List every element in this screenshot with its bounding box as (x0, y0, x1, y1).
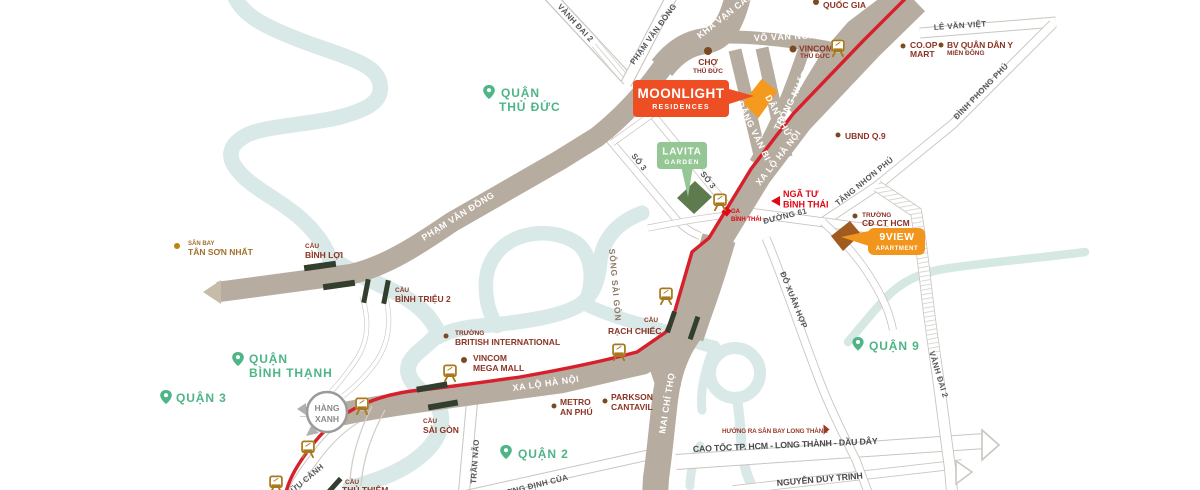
svg-text:THỦ THIÊM: THỦ THIÊM (342, 484, 388, 490)
svg-text:SÂN BAY: SÂN BAY (188, 240, 214, 247)
svg-text:BÌNH TRIỆU 2: BÌNH TRIỆU 2 (395, 293, 451, 304)
svg-text:APARTMENT: APARTMENT (876, 246, 919, 252)
svg-text:LAVITA: LAVITA (662, 147, 701, 158)
svg-text:9VIEW: 9VIEW (879, 231, 914, 243)
svg-text:HƯỚNG RA SÂN BAY LONG THÀNH: HƯỚNG RA SÂN BAY LONG THÀNH (722, 426, 828, 435)
svg-text:RESIDENCES: RESIDENCES (652, 104, 710, 111)
svg-text:BÌNH THÁI: BÌNH THÁI (731, 215, 762, 223)
svg-text:QUẬN 3: QUẬN 3 (176, 390, 227, 405)
svg-text:METRO: METRO (560, 397, 591, 407)
svg-text:BRITISH INTERNATIONAL: BRITISH INTERNATIONAL (455, 337, 560, 347)
svg-text:TRƯỜNG: TRƯỜNG (455, 328, 484, 337)
svg-text:BÌNH LỢI: BÌNH LỢI (305, 250, 343, 260)
svg-text:VINCOM: VINCOM (473, 353, 507, 363)
svg-text:QUẬN 9: QUẬN 9 (869, 338, 920, 353)
svg-text:THỦ ĐỨC: THỦ ĐỨC (499, 99, 561, 114)
svg-text:QUẬN: QUẬN (501, 85, 540, 100)
svg-text:UBND Q.9: UBND Q.9 (845, 131, 886, 141)
svg-text:CANTAVIL: CANTAVIL (611, 402, 653, 412)
svg-text:GARDEN: GARDEN (664, 159, 699, 166)
svg-text:TÂN SƠN NHẤT: TÂN SƠN NHẤT (188, 246, 254, 257)
svg-text:THỦ ĐỨC: THỦ ĐỨC (800, 51, 830, 60)
svg-text:XANH: XANH (315, 414, 339, 424)
svg-text:MART: MART (910, 49, 935, 59)
svg-text:CHỢ: CHỢ (698, 57, 718, 67)
svg-text:GA: GA (731, 209, 741, 215)
svg-text:QUẬN: QUẬN (249, 351, 288, 366)
svg-text:BÌNH THÁI: BÌNH THÁI (783, 200, 829, 210)
svg-text:CĐ CT HCM: CĐ CT HCM (862, 218, 910, 228)
svg-text:HÀNG: HÀNG (314, 403, 339, 413)
svg-text:THỦ ĐỨC: THỦ ĐỨC (693, 66, 723, 75)
svg-text:PARKSON: PARKSON (611, 392, 653, 402)
svg-text:BÌNH THẠNH: BÌNH THẠNH (249, 365, 333, 380)
svg-text:MOONLIGHT: MOONLIGHT (638, 86, 725, 101)
svg-text:VINCOM: VINCOM (799, 44, 833, 54)
svg-text:BV QUÂN DÂN Y: BV QUÂN DÂN Y (947, 39, 1013, 50)
svg-text:SÀI GÒN: SÀI GÒN (423, 424, 459, 435)
svg-text:AN PHÚ: AN PHÚ (560, 406, 593, 417)
svg-text:RẠCH CHIẾC: RẠCH CHIẾC (608, 326, 661, 336)
svg-text:QUẬN 2: QUẬN 2 (518, 446, 569, 461)
svg-text:QUỐC GIA: QUỐC GIA (823, 0, 866, 10)
svg-text:MEGA MALL: MEGA MALL (473, 363, 524, 373)
svg-text:NGÃ TƯ: NGÃ TƯ (783, 189, 819, 199)
